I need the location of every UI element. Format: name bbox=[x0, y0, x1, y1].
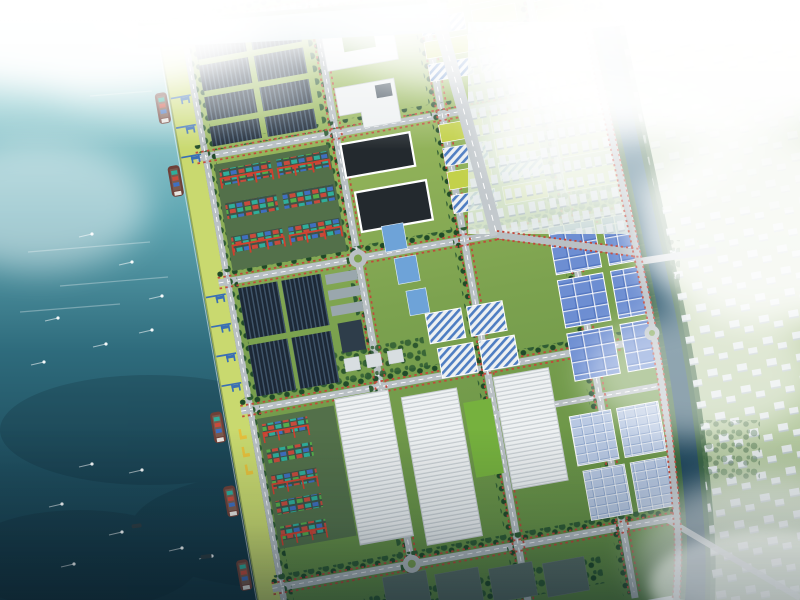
white-cube bbox=[365, 353, 382, 368]
container-yard-north bbox=[214, 144, 347, 271]
scene-svg bbox=[0, 0, 800, 600]
white-cube bbox=[344, 356, 361, 371]
top-haze-fade bbox=[0, 0, 800, 150]
aerial-rendering bbox=[0, 0, 800, 600]
office-tower bbox=[337, 319, 366, 353]
white-cube bbox=[387, 349, 404, 364]
